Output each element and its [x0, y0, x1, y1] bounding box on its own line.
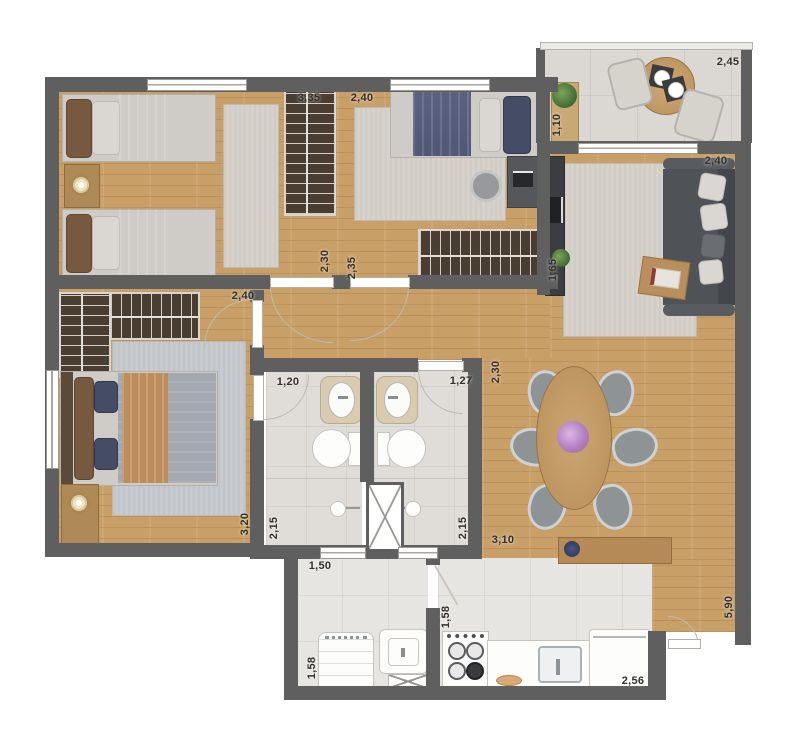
wall-master-right-c	[250, 419, 264, 557]
sofa-pillow-3	[700, 233, 726, 259]
tv	[548, 197, 563, 223]
dim-laundry-depth: 1,58	[306, 657, 318, 680]
burner-1	[448, 642, 466, 660]
bath1-toilet-bowl	[312, 429, 351, 468]
wall-bath-top-a	[264, 358, 418, 372]
wall-right-outer	[735, 143, 751, 645]
bed1-pillow-2	[92, 101, 120, 155]
bed1-pillow	[66, 99, 92, 158]
dim-bedroom1-wardrobe: 3,35	[298, 92, 321, 104]
window-balcony-door	[578, 143, 698, 154]
wall-master-right-b	[250, 345, 264, 375]
fridge-handle	[593, 636, 646, 638]
bath2-sink-counter	[376, 376, 418, 424]
wall-fridge-right	[648, 631, 666, 700]
washer-controls	[325, 636, 367, 639]
stove-knobs	[447, 634, 484, 638]
dim-bath2-width: 1,27	[450, 375, 473, 387]
bath1-sink-basin	[328, 382, 355, 418]
dim-dining-left-depth: 2,30	[490, 361, 502, 384]
laptop	[513, 171, 533, 187]
dim-kitchen-passage: 1,58	[440, 606, 452, 629]
master-pillow-brown	[74, 377, 94, 480]
lamp-master	[68, 492, 90, 514]
master-throw	[122, 373, 168, 483]
stove	[442, 631, 489, 688]
desk-bedroom2	[507, 156, 540, 208]
master-pillow-navy-1	[94, 381, 118, 413]
door-bedroom2	[350, 277, 410, 288]
dim-balcony-width: 2,45	[717, 56, 740, 68]
shower1-boundary-line	[266, 478, 362, 479]
dim-living-tv-wall: 1,65	[547, 259, 559, 282]
burner-4	[466, 662, 484, 680]
bed3-blanket	[413, 91, 471, 156]
bed2-blanket	[119, 209, 171, 275]
bath2-toilet-bowl	[387, 429, 426, 468]
bath2-sink-basin	[384, 382, 411, 418]
wall-left	[45, 77, 59, 557]
sofa-pillow-2	[699, 202, 728, 231]
window-master	[46, 370, 59, 469]
coffee-table	[638, 256, 691, 300]
single-bed-1	[62, 94, 216, 162]
window-bedroom2	[390, 79, 490, 91]
wall-balcony-left	[536, 48, 545, 143]
dim-living-length: 5,90	[723, 596, 735, 619]
dim-laundry-width: 1,50	[309, 560, 332, 572]
coffee-table-books	[650, 267, 681, 289]
bath2-faucet	[388, 396, 398, 399]
dim-master-depth: 3,20	[239, 513, 251, 536]
master-headboard	[61, 372, 73, 485]
floor-plan: 3,35 2,40 2,45 1,10 2,40 1,65 2,30 2,35 …	[0, 0, 800, 746]
wall-laundry-left	[284, 557, 298, 700]
window-bedroom1	[147, 79, 247, 91]
dim-bedroom1-depth: 2,30	[319, 250, 331, 273]
balcony-railing	[540, 42, 753, 50]
wardrobe-bedroom2	[418, 229, 542, 279]
wall-bath-divider	[360, 368, 374, 482]
dining-flowers	[557, 421, 589, 453]
bed3-pillow-2	[479, 98, 501, 152]
bath1-faucet	[338, 396, 348, 399]
desk-chair-bedroom2	[470, 170, 502, 202]
rug-bedroom1	[223, 104, 279, 268]
bed2-pillow	[66, 214, 92, 273]
dim-bath2-depth: 2,15	[457, 517, 469, 540]
double-bed-master	[60, 371, 218, 486]
window-bath2	[398, 547, 438, 559]
dim-bedroom2-depth: 2,35	[346, 257, 358, 280]
bath1-sink-counter	[320, 376, 362, 424]
bath2-shower-head	[405, 501, 421, 517]
sofa-pillow-1	[697, 172, 727, 202]
shower2-boundary-line	[374, 478, 470, 479]
balcony-plate-2	[668, 82, 684, 98]
single-bed-2	[62, 209, 216, 277]
kitchen-sink	[538, 646, 582, 683]
wall-master-bottom	[45, 543, 263, 557]
kitchen-faucet	[556, 659, 560, 675]
master-pillow-navy-2	[94, 438, 118, 470]
bed3-pillow	[503, 96, 531, 154]
wall-balcony-right	[741, 48, 752, 143]
wall-kitchen-bottom	[284, 686, 666, 700]
sofa-armrest-bottom	[663, 304, 735, 316]
burner-3	[448, 662, 466, 680]
wall-bedrooms-bottom-a	[45, 275, 270, 289]
ventilation-shaft	[366, 482, 404, 552]
door-master	[252, 300, 263, 348]
dim-balcony-depth: 1,10	[551, 114, 563, 137]
kitchen-counter	[487, 640, 593, 688]
counter-bread	[496, 675, 522, 686]
wall-bedrooms-bottom-c	[408, 275, 558, 289]
burner-2	[466, 642, 484, 660]
bath1-shower-arm	[344, 507, 360, 509]
window-bath1	[320, 547, 366, 559]
sofa-pillow-4	[698, 259, 724, 285]
dim-kitchen-width: 2,56	[622, 675, 645, 687]
dim-living-width: 2,40	[705, 155, 728, 167]
door-entry	[668, 639, 701, 649]
dim-bath1-width: 1,20	[277, 376, 300, 388]
wall-kitchen-divider-b	[426, 608, 440, 690]
wall-bath-right	[468, 358, 482, 559]
washing-machine	[318, 632, 374, 688]
door-bedroom1	[270, 277, 334, 288]
bed1-blanket	[119, 94, 171, 160]
laundry-tub	[379, 629, 428, 674]
wardrobe-bedroom1	[284, 89, 336, 216]
dim-bath1-depth: 2,15	[268, 517, 280, 540]
bath1-shower-head	[330, 501, 346, 517]
laundry-tub-faucet	[401, 648, 405, 657]
dim-dining-width: 3,10	[492, 534, 515, 546]
bench-bowl	[564, 541, 580, 557]
single-bed-3	[390, 91, 540, 158]
bed2-pillow-2	[92, 216, 120, 270]
dim-hall-width: 2,40	[232, 290, 255, 302]
lamp-bedroom1	[70, 174, 92, 196]
dim-bedroom2-width: 2,40	[351, 92, 374, 104]
door-bath1	[253, 375, 264, 421]
door-bath2	[418, 361, 464, 371]
master-closet-left	[59, 292, 111, 378]
